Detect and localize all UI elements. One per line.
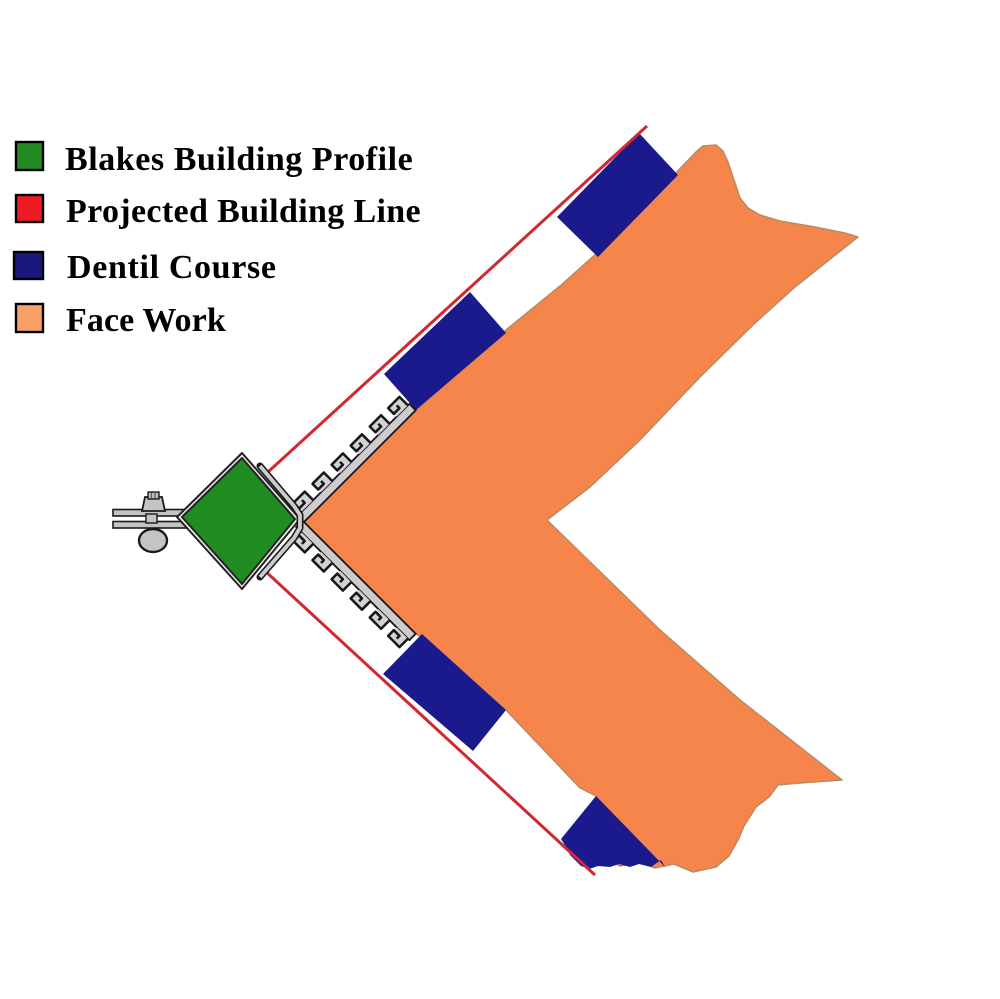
svg-text:Face Work: Face Work xyxy=(66,302,226,339)
svg-text:Projected Building Line: Projected Building Line xyxy=(66,193,421,230)
svg-text:Blakes Building Profile: Blakes Building Profile xyxy=(65,141,413,178)
svg-text:Dentil Course: Dentil Course xyxy=(67,249,277,286)
